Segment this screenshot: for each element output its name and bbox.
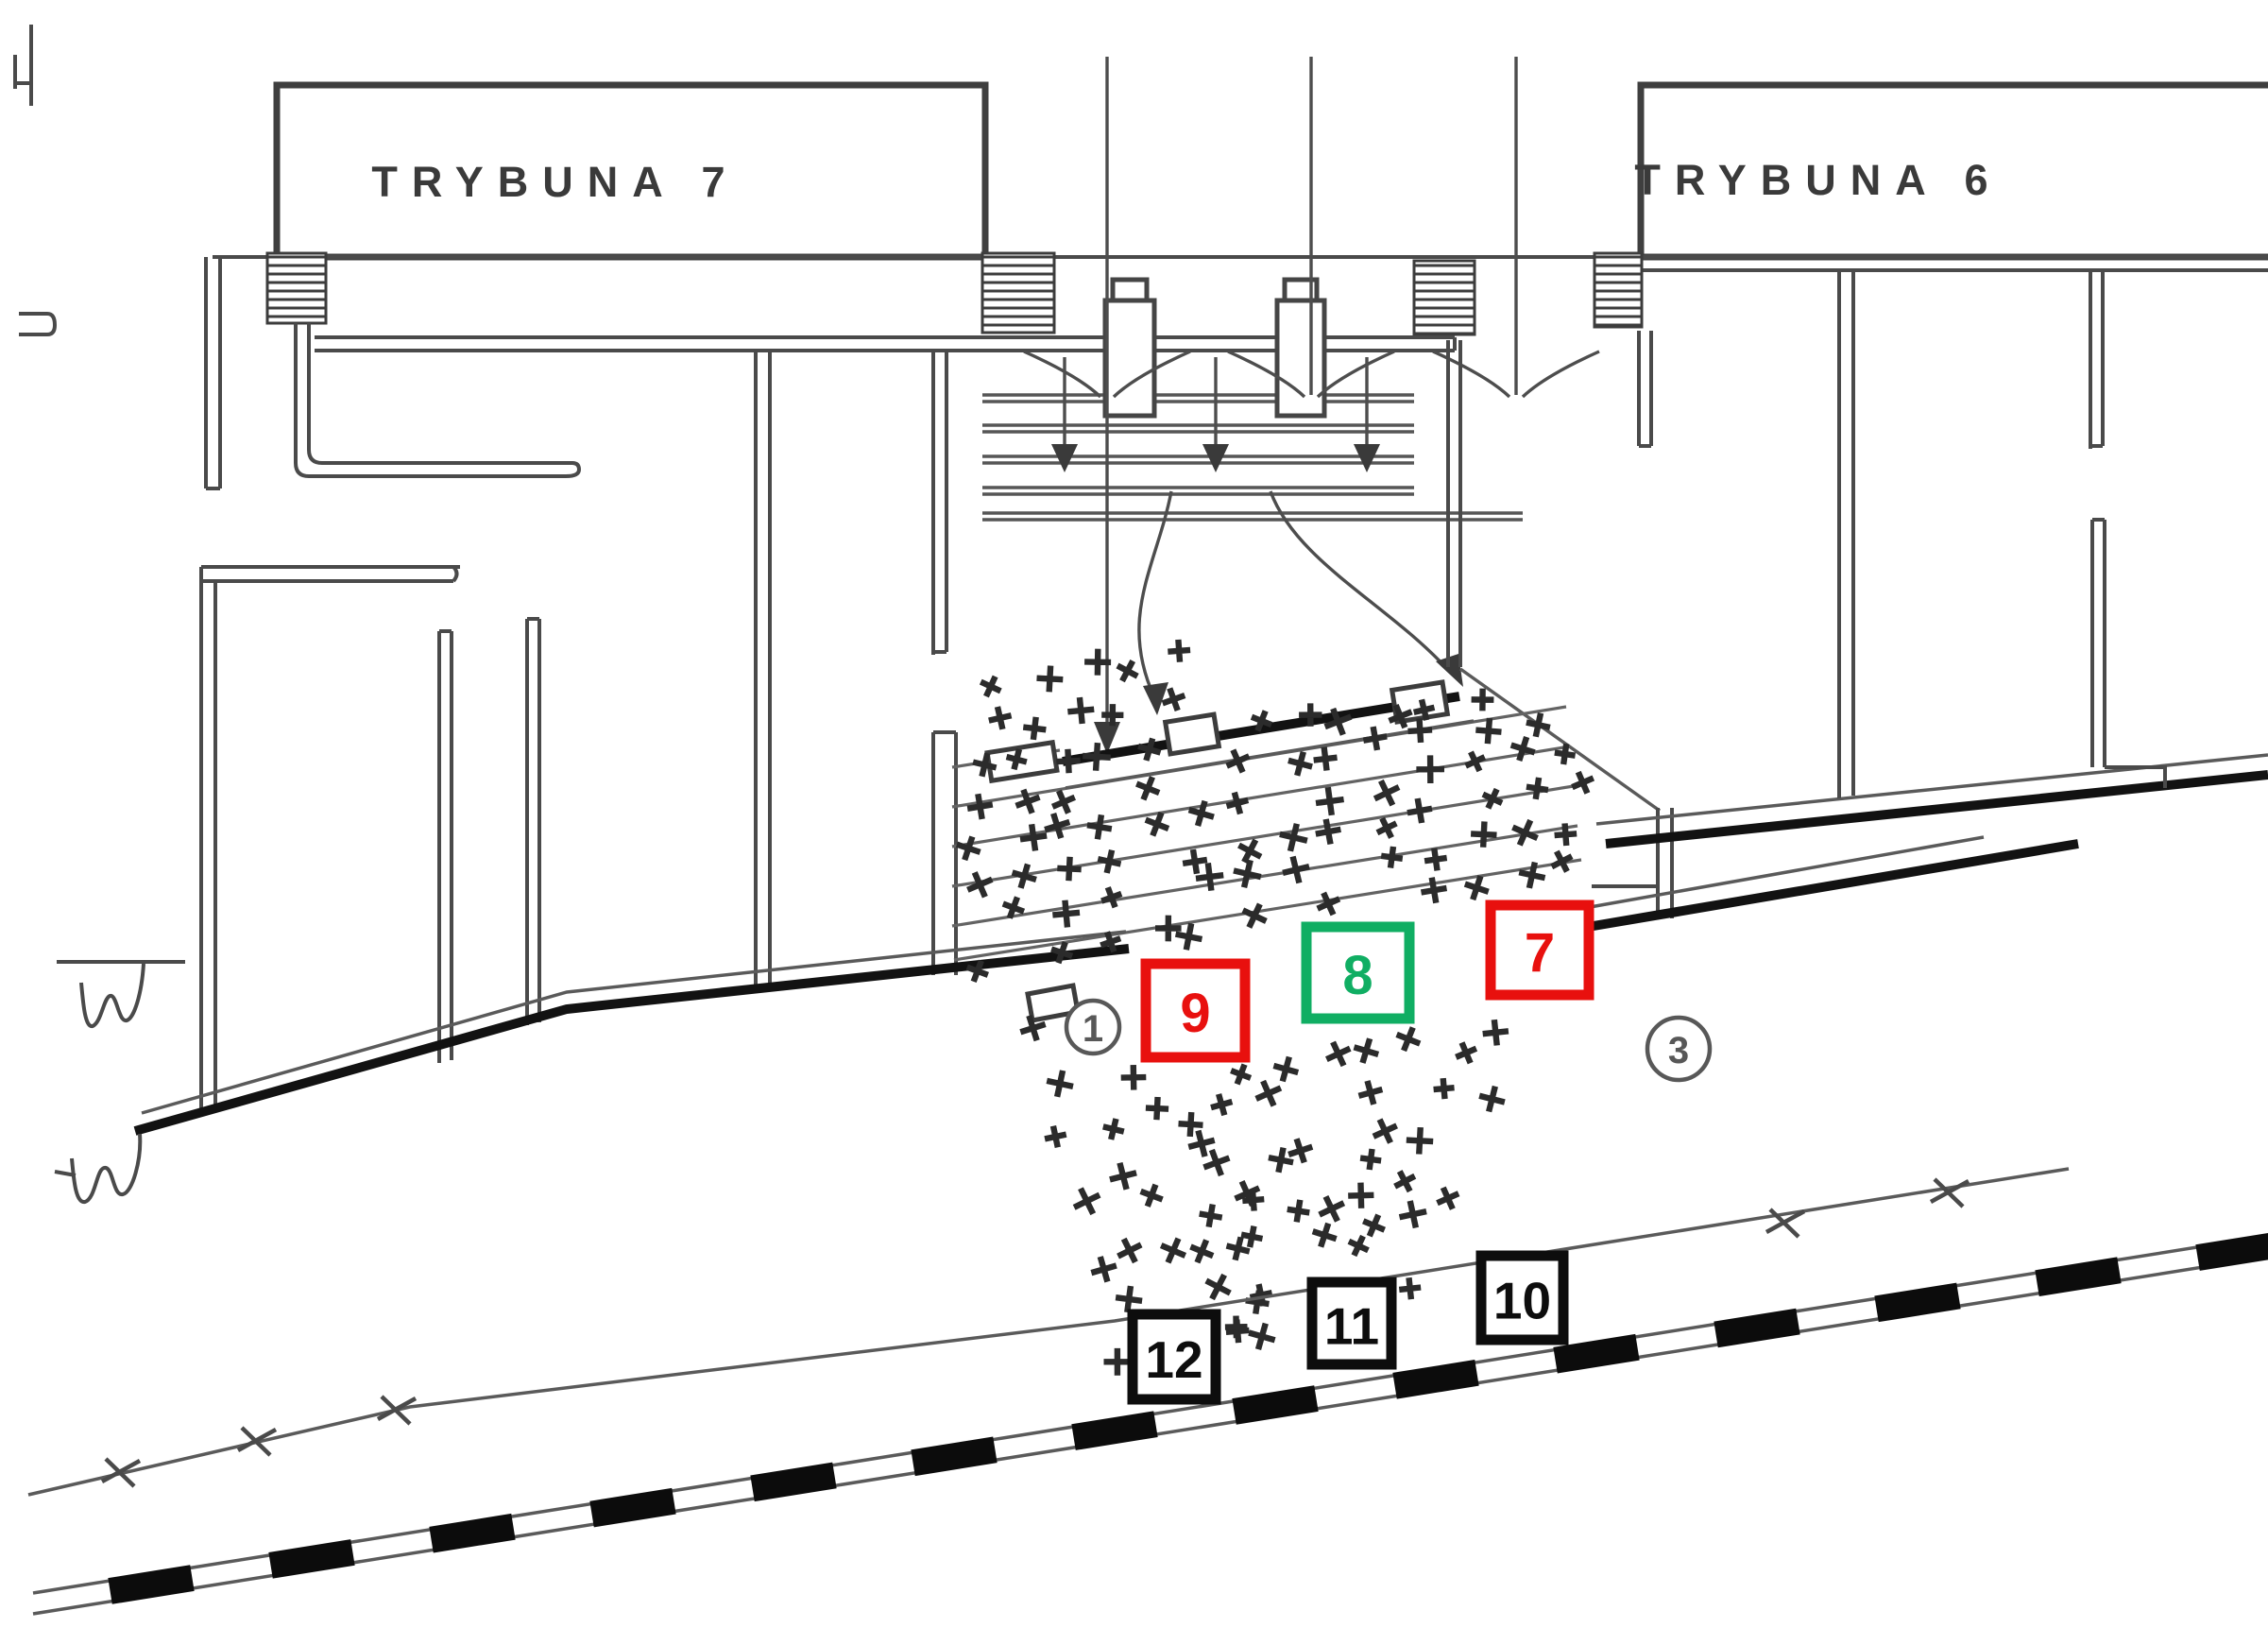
crowd-cross: [1313, 816, 1342, 846]
crowd-cross: [1136, 1180, 1167, 1210]
railway-sleeper: [1392, 1360, 1478, 1399]
crowd-cross: [1348, 1182, 1374, 1208]
crowd-cross: [1198, 1203, 1224, 1229]
circled-number-3: 3: [1647, 1018, 1710, 1080]
crowd-cross: [1088, 1253, 1120, 1285]
fence-x-mark: [102, 1459, 140, 1486]
railway-sleeper: [108, 1565, 194, 1604]
turnstile: [1277, 300, 1324, 416]
marker-sector-12: 12: [1133, 1314, 1216, 1399]
marker-sector-11: 11: [1312, 1282, 1391, 1364]
wall-stub-b: [527, 619, 539, 1025]
marker-sector-8: 8: [1306, 927, 1409, 1019]
crowd-cross: [1231, 857, 1265, 891]
crowd-cross: [1066, 696, 1096, 726]
crowd-cross: [1156, 1233, 1191, 1268]
wall-break-symbol-upper: [57, 962, 185, 1026]
crowd-cross: [976, 672, 1005, 701]
crowd-cross: [1312, 745, 1339, 772]
circle-label: 3: [1668, 1030, 1689, 1071]
flow-arrowhead: [1143, 682, 1168, 715]
crowd-cross: [1406, 1126, 1434, 1155]
crowd-cross: [1056, 748, 1082, 774]
crowd-cross: [1309, 1220, 1340, 1251]
crowd-cross: [1406, 797, 1434, 825]
marker-label: 11: [1324, 1297, 1379, 1356]
wall-stub-d: [933, 351, 946, 655]
railway-sleeper: [589, 1488, 675, 1528]
barrier-post: [1166, 714, 1219, 754]
crowd-cross: [1239, 1224, 1265, 1249]
fence-x-mark: [1931, 1179, 1969, 1207]
crowd-cross: [1516, 860, 1547, 891]
marker-sector-9: 9: [1146, 964, 1245, 1057]
wall-stub-a: [439, 631, 452, 1063]
edge-tick-marks: [15, 25, 31, 106]
crowd-cross: [1100, 1116, 1126, 1141]
railway-sleeper: [429, 1514, 515, 1553]
crowd-cross: [1392, 1023, 1424, 1055]
railway-sleeper: [1714, 1309, 1799, 1348]
barrier-posts: [987, 682, 1447, 780]
fence-x-marks: [102, 1179, 1969, 1486]
marker-sector-10: 10: [1481, 1256, 1563, 1340]
railway-sleeper: [2035, 1257, 2121, 1296]
crowd-cross: [1167, 639, 1190, 662]
tribune-left-label: TRYBUNA 7: [371, 158, 739, 206]
flow-curve-right: [1270, 491, 1447, 669]
crowd-cross: [1068, 1182, 1106, 1220]
crowd-cross: [1043, 1123, 1069, 1150]
crowd-cross: [1266, 1145, 1295, 1174]
railway-sleeper: [1071, 1411, 1157, 1450]
crowd-cross: [1185, 797, 1218, 830]
crowd-cross: [1286, 1198, 1311, 1224]
railway-sleeper: [2195, 1231, 2268, 1271]
crowd-cross: [986, 704, 1014, 731]
circled-number-1: 1: [1066, 1001, 1119, 1054]
crowd-cross: [1361, 725, 1389, 752]
crowd-cross: [1085, 813, 1114, 841]
crowd-cross: [1251, 1075, 1287, 1111]
gate-right-corridor: [1448, 331, 1651, 667]
crowd-cross: [1356, 1078, 1386, 1108]
marker-label: 10: [1493, 1272, 1551, 1330]
crowd-cross: [1112, 1233, 1147, 1268]
crowd-cross: [1223, 790, 1251, 817]
crowd-cross: [1525, 776, 1549, 800]
wall-break-symbol-lower: [55, 1134, 140, 1202]
hatched-pier: [1594, 253, 1642, 327]
crowd-cross: [1051, 899, 1081, 928]
marker-label: 12: [1145, 1330, 1202, 1389]
tribune-right-label: TRYBUNA 6: [1634, 156, 2002, 204]
crowd-cross: [1313, 1191, 1349, 1226]
crowd-cross: [1208, 1091, 1236, 1119]
turnstile: [1105, 300, 1154, 416]
crowd-cross: [1186, 1236, 1218, 1267]
fence-x-mark: [238, 1428, 276, 1455]
railway-sleeper: [1232, 1385, 1318, 1425]
fence-x-mark: [378, 1397, 416, 1424]
railway-sleeper: [1874, 1283, 1960, 1323]
hatched-piers: [267, 253, 1642, 334]
marker-label: 7: [1525, 922, 1555, 984]
crowd-cross: [1322, 1037, 1356, 1071]
crowd-cross: [1419, 875, 1449, 905]
crowd-cross: [1380, 846, 1405, 870]
circle-label: 1: [1083, 1008, 1103, 1050]
crowd-cross: [1145, 1096, 1168, 1120]
wall-bracket: [19, 314, 55, 334]
crowd-cross: [1452, 1038, 1481, 1068]
crowd-cross: [1245, 1320, 1278, 1353]
crowd-cross: [1112, 656, 1142, 686]
crowd-cross: [1398, 1277, 1422, 1300]
crowd-cross: [1103, 1348, 1131, 1376]
crowd-cross: [1181, 848, 1209, 876]
wall-stub-c: [756, 351, 770, 985]
railway-sleeper: [750, 1463, 836, 1502]
crowd-cross: [1280, 853, 1313, 886]
flow-arrowhead: [1202, 444, 1229, 472]
stadium-plan-page: TRYBUNA 7 TRYBUNA 6: [0, 0, 2268, 1645]
left-inner-L-wall: [296, 323, 579, 476]
crowd-cross: [1476, 1083, 1509, 1115]
crowd-cross: [1230, 1176, 1265, 1211]
crowd-cross: [1135, 735, 1164, 763]
railway-sleepers: [108, 1231, 2268, 1603]
marker-sector-7: 7: [1491, 905, 1589, 995]
crowd-cross: [1276, 820, 1310, 854]
crowd-cross: [1106, 1159, 1139, 1192]
crowd-cross: [1344, 1231, 1373, 1259]
crowd-cross: [1390, 1166, 1420, 1196]
crowd-cross: [1237, 899, 1271, 933]
crowd-cross: [1470, 821, 1497, 848]
crowd-cross: [1433, 1077, 1456, 1100]
crowd-cross: [1481, 1019, 1509, 1047]
crowd-cross: [1044, 1068, 1076, 1100]
crowd-cross: [1022, 715, 1048, 741]
crowd-cross: [1096, 848, 1124, 876]
crowd-cross: [1524, 711, 1552, 739]
main-wall-left: [135, 949, 1129, 1131]
marker-label: 8: [1342, 945, 1373, 1006]
left-upper-wall: [206, 257, 220, 488]
plan-drawing: TRYBUNA 7 TRYBUNA 6: [0, 0, 2268, 1645]
right-interior-walls: [1839, 270, 2165, 798]
crowd-cross: [1359, 1210, 1390, 1241]
crowd-cross: [1416, 755, 1444, 783]
marker-label: 9: [1180, 983, 1210, 1044]
crowd-cross: [1313, 888, 1345, 920]
crowd-cross: [1369, 775, 1405, 811]
crowd-cross: [1396, 1198, 1429, 1231]
crowd-cross: [1200, 1269, 1236, 1306]
crowd-cross: [1553, 743, 1577, 766]
crowd-cross: [1314, 785, 1346, 817]
crowd-cross: [965, 792, 995, 821]
crowd-flow-lines: [1107, 57, 1516, 729]
railway-sleeper: [268, 1539, 354, 1579]
hatched-pier: [267, 253, 326, 323]
crowd-cross: [1359, 1148, 1383, 1172]
crowd-cross: [1012, 785, 1044, 817]
hatched-pier: [1414, 261, 1475, 334]
crowd-cross: [1368, 1114, 1402, 1148]
crowd-cross: [1098, 883, 1125, 911]
crowd-cross: [1508, 733, 1539, 764]
crowd-cross: [1432, 1183, 1463, 1214]
hatched-pier: [982, 253, 1054, 333]
crowd-cross: [1568, 767, 1598, 797]
crowd-cross: [1270, 1054, 1302, 1085]
crowd-cross: [1120, 1065, 1146, 1090]
crowd-cross: [1227, 1061, 1254, 1088]
crowd-cross: [1351, 1035, 1382, 1066]
crowd-cross: [1057, 856, 1083, 882]
flow-arrowhead: [1051, 444, 1078, 472]
main-wall-right: [1582, 775, 2268, 928]
flow-curve-left: [1139, 491, 1171, 697]
railway-sleeper: [911, 1437, 997, 1477]
flow-arrowhead: [1354, 444, 1380, 472]
crowd-cross: [1036, 665, 1064, 693]
